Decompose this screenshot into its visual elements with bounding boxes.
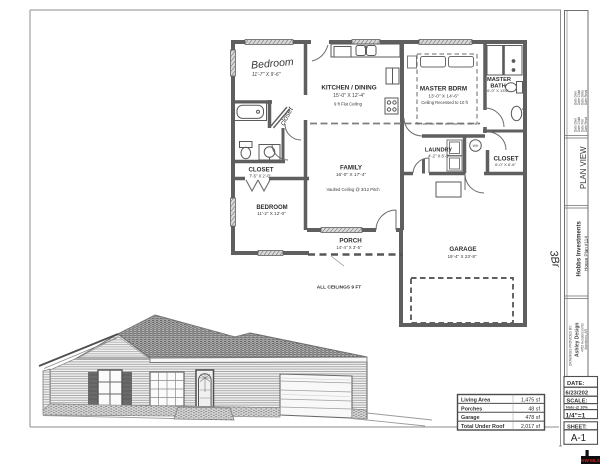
svg-text:13'-0" X 14'-6": 13'-0" X 14'-6" — [428, 94, 459, 100]
svg-text:DRAWINGS PROVIDED BY:: DRAWINGS PROVIDED BY: — [569, 325, 573, 366]
svg-text:ALL CEILINGS 9 FT: ALL CEILINGS 9 FT — [317, 285, 361, 291]
svg-text:Living Area: Living Area — [461, 397, 491, 403]
svg-text:11'-2" X 12'-0": 11'-2" X 12'-0" — [257, 211, 286, 216]
svg-text:A-1: A-1 — [571, 433, 586, 444]
svg-text:DATE:: DATE: — [567, 381, 584, 387]
svg-text:CLOSET: CLOSET — [248, 167, 273, 174]
svg-text:11'-7" X 9'-6": 11'-7" X 9'-6" — [252, 72, 281, 78]
svg-text:NW MLS: NW MLS — [581, 458, 600, 463]
svg-text:Note @ 10%: Note @ 10% — [566, 405, 588, 409]
svg-text:14'-4" X 3'-5": 14'-4" X 3'-5" — [336, 245, 362, 250]
svg-text:Vaulted Ceiling @ 3/12 Pitch: Vaulted Ceiling @ 3/12 Pitch — [326, 187, 380, 192]
svg-text:15'-0" X 12'-4": 15'-0" X 12'-4" — [333, 93, 365, 99]
svg-text:House Plan #114: House Plan #114 — [584, 236, 589, 271]
svg-text:1/4"=1: 1/4"=1 — [566, 412, 586, 419]
svg-text:WH: WH — [473, 144, 479, 148]
svg-text:Garage: Garage — [461, 415, 480, 421]
svg-text:GARAGE: GARAGE — [449, 246, 476, 253]
svg-text:Hobbs Investments: Hobbs Investments — [577, 220, 583, 276]
svg-text:48 sf: 48 sf — [528, 406, 540, 412]
svg-text:KITCHEN / DINING: KITCHEN / DINING — [321, 85, 376, 92]
svg-text:PORCH: PORCH — [339, 238, 362, 245]
svg-text:478 sf: 478 sf — [525, 415, 540, 421]
svg-text:PLAN VIEW: PLAN VIEW — [579, 146, 588, 189]
svg-text:9 ft Flat Ceiling: 9 ft Flat Ceiling — [334, 102, 363, 107]
svg-text:19'-4" X 23'-8": 19'-4" X 23'-8" — [447, 254, 476, 259]
svg-text:FAMILY: FAMILY — [340, 165, 363, 172]
svg-text:6'-0" X 13'6": 6'-0" X 13'6" — [487, 88, 509, 93]
svg-text:6'-0" X 6'-6": 6'-0" X 6'-6" — [495, 162, 516, 167]
svg-text:2,017 sf: 2,017 sf — [521, 424, 541, 430]
svg-text:4'-2" X 6'-2": 4'-2" X 6'-2" — [428, 154, 450, 159]
svg-text:7'-5" X 2'-0": 7'-5" X 2'-0" — [249, 174, 271, 179]
svg-text:MASTER: MASTER — [487, 77, 511, 83]
svg-text:16'-0" X 17'-4": 16'-0" X 17'-4" — [336, 172, 367, 178]
svg-text:Date Revd: Date Revd — [584, 90, 588, 105]
svg-text:Jonesboro, AR: Jonesboro, AR — [584, 328, 588, 350]
svg-text:1,475 sf: 1,475 sf — [521, 397, 541, 403]
svg-text:MASTER BDRM: MASTER BDRM — [420, 86, 467, 93]
svg-text:Porches: Porches — [461, 406, 482, 412]
svg-text:Date Revd: Date Revd — [584, 117, 588, 132]
svg-text:Total Under Roof: Total Under Roof — [461, 424, 505, 430]
svg-text:Ceiling Recessed to 10 ft: Ceiling Recessed to 10 ft — [421, 100, 468, 105]
